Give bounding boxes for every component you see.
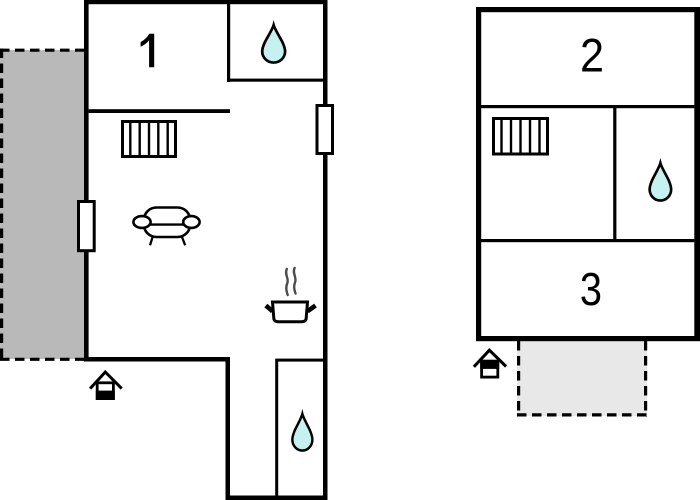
svg-text:3: 3 bbox=[580, 264, 602, 316]
svg-text:2: 2 bbox=[580, 29, 604, 82]
